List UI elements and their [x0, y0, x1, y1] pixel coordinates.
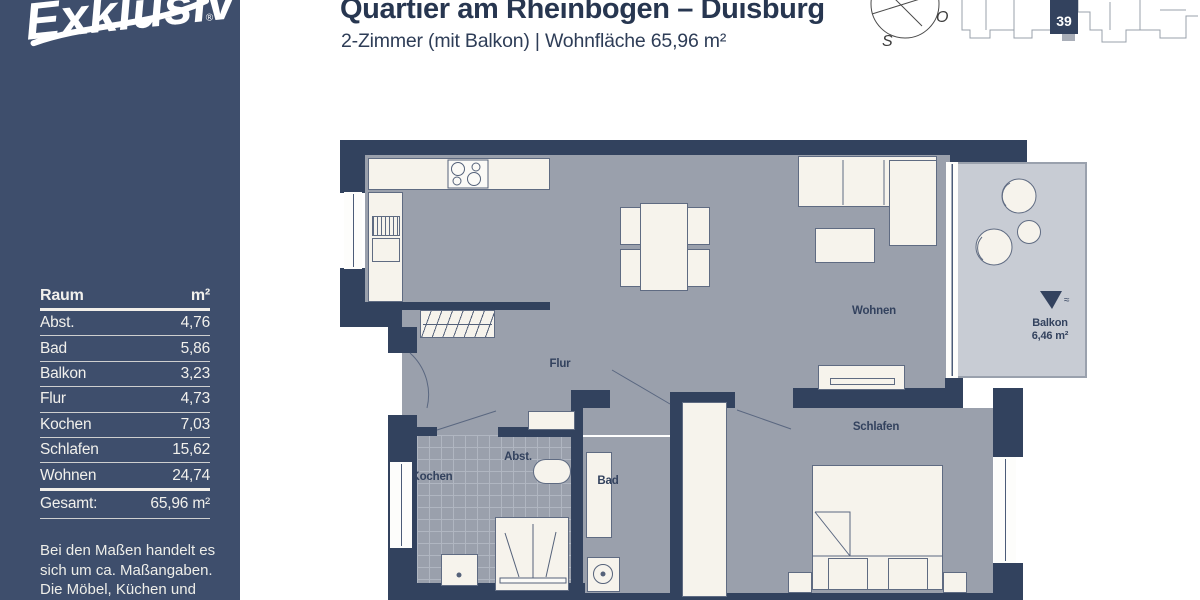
brand-logo-icon: Exklusiv ®: [0, 0, 240, 110]
room-label-bad: Bad: [597, 475, 618, 487]
window: [390, 462, 412, 548]
page-subtitle: 2-Zimmer (mit Balkon) | Wohnfläche 65,96…: [341, 30, 726, 53]
unit-number: 39: [1056, 13, 1072, 29]
area-table: Raum m² Abst. 4,76 Bad 5,86 Balkon 3,23 …: [40, 283, 210, 519]
kitchen-sink: [441, 554, 478, 586]
table-row: Wohnen 24,74: [40, 463, 210, 490]
room-label-balkon: Balkon 6,46 m²: [1032, 317, 1069, 343]
row-room: Flur: [40, 390, 66, 408]
wall-segment: [945, 378, 963, 388]
area-table-header: Raum m²: [40, 283, 210, 311]
kitchen-counter: [368, 158, 550, 190]
window: [994, 457, 1016, 563]
basin-fixture: [533, 459, 571, 484]
row-room: Bad: [40, 340, 67, 358]
wall-segment: [993, 388, 1023, 457]
row-room: Balkon: [40, 365, 86, 383]
site-keyplan-icon: 39: [962, 0, 1198, 42]
hall-wardrobe: [420, 310, 495, 338]
dining-chair: [686, 207, 710, 245]
registered-mark: ®: [205, 12, 214, 24]
wall-segment: [571, 390, 610, 408]
storage-shelf: [528, 411, 575, 430]
wall-segment: [388, 327, 417, 353]
sofa-chaise: [889, 160, 937, 246]
table-total-row: Gesamt: 65,96 m²: [40, 491, 210, 519]
logo-swoosh-icon: [31, 1, 209, 43]
row-area: 24,74: [172, 467, 210, 485]
balcony-floor: [958, 162, 1087, 378]
wall-segment: [950, 140, 1027, 162]
coffee-table: [815, 228, 875, 263]
total-value: 65,96 m²: [150, 495, 210, 513]
row-area: 7,03: [181, 416, 210, 434]
table-row: Bad 5,86: [40, 336, 210, 361]
col-room: Raum: [40, 287, 84, 305]
compass-icon: O S: [871, 0, 948, 50]
col-area: m²: [191, 287, 210, 305]
room-label-abst: Abst.: [504, 451, 532, 463]
row-area: 15,62: [172, 441, 210, 459]
sideboard-detail: [830, 378, 895, 385]
row-area: 4,73: [181, 390, 210, 408]
window: [344, 192, 362, 269]
wall-segment: [340, 140, 963, 155]
dining-chair: [686, 249, 710, 287]
row-room: Kochen: [40, 416, 91, 434]
row-area: 3,23: [181, 365, 210, 383]
room-label-flur: Flur: [550, 358, 571, 370]
table-row: Schlafen 15,62: [40, 438, 210, 463]
table-row: Kochen 7,03: [40, 413, 210, 438]
nightstand: [788, 572, 812, 593]
wall-segment: [340, 268, 365, 327]
balkon-name: Balkon: [1032, 317, 1069, 330]
wall-segment: [670, 408, 682, 597]
balkon-area: 6,46 m²: [1032, 330, 1069, 343]
table-row: Balkon 3,23: [40, 362, 210, 387]
row-room: Schlafen: [40, 441, 99, 459]
row-area: 5,86: [181, 340, 210, 358]
sidebar: Exklusiv ® Raum m² Abst. 4,76 Bad 5,86 B…: [0, 0, 240, 600]
disclaimer-line: Bei den Maßen handelt es: [40, 541, 215, 561]
room-label-kochen: Kochen: [412, 471, 453, 483]
brand-logo-text: Exklusiv: [22, 0, 240, 52]
nightstand: [943, 572, 967, 593]
flat-floorplan-page: Exklusiv ® Raum m² Abst. 4,76 Bad 5,86 B…: [0, 0, 1200, 600]
shower: [495, 517, 569, 591]
wall-segment: [793, 388, 963, 408]
dining-table: [640, 203, 688, 291]
bath-vanity: [586, 452, 612, 538]
table-row: Abst. 4,76: [40, 311, 210, 336]
wall-segment: [365, 302, 402, 327]
wall-segment: [571, 408, 583, 597]
pillow: [828, 558, 868, 590]
disclaimer-line: sich um ca. Maßangaben.: [40, 561, 215, 581]
disclaimer: Bei den Maßen handelt es sich um ca. Maß…: [40, 541, 215, 600]
row-area: 4,76: [181, 314, 210, 332]
wall-segment: [583, 593, 1023, 600]
fridge: [372, 216, 400, 236]
row-room: Wohnen: [40, 467, 96, 485]
wall-segment: [417, 427, 437, 436]
built-in-closet: [682, 402, 727, 597]
wall-segment: [402, 302, 550, 310]
balcony-door-window: [946, 162, 958, 378]
room-label-schlafen: Schlafen: [853, 421, 899, 433]
disclaimer-line: Die Möbel, Küchen und: [40, 580, 215, 600]
room-label-wohnen: Wohnen: [852, 305, 896, 317]
pillow: [888, 558, 928, 590]
table-row: Flur 4,73: [40, 387, 210, 412]
compass-east: O: [936, 9, 948, 26]
total-label: Gesamt:: [40, 495, 97, 513]
wall-segment: [340, 140, 365, 193]
row-room: Abst.: [40, 314, 74, 332]
page-title: Quartier am Rheinbogen – Duisburg: [340, 0, 825, 26]
kitchen-cabinet: [372, 238, 400, 262]
washing-machine: [587, 557, 620, 592]
compass-south: S: [882, 33, 893, 50]
highlighted-unit-box: [1050, 0, 1078, 34]
